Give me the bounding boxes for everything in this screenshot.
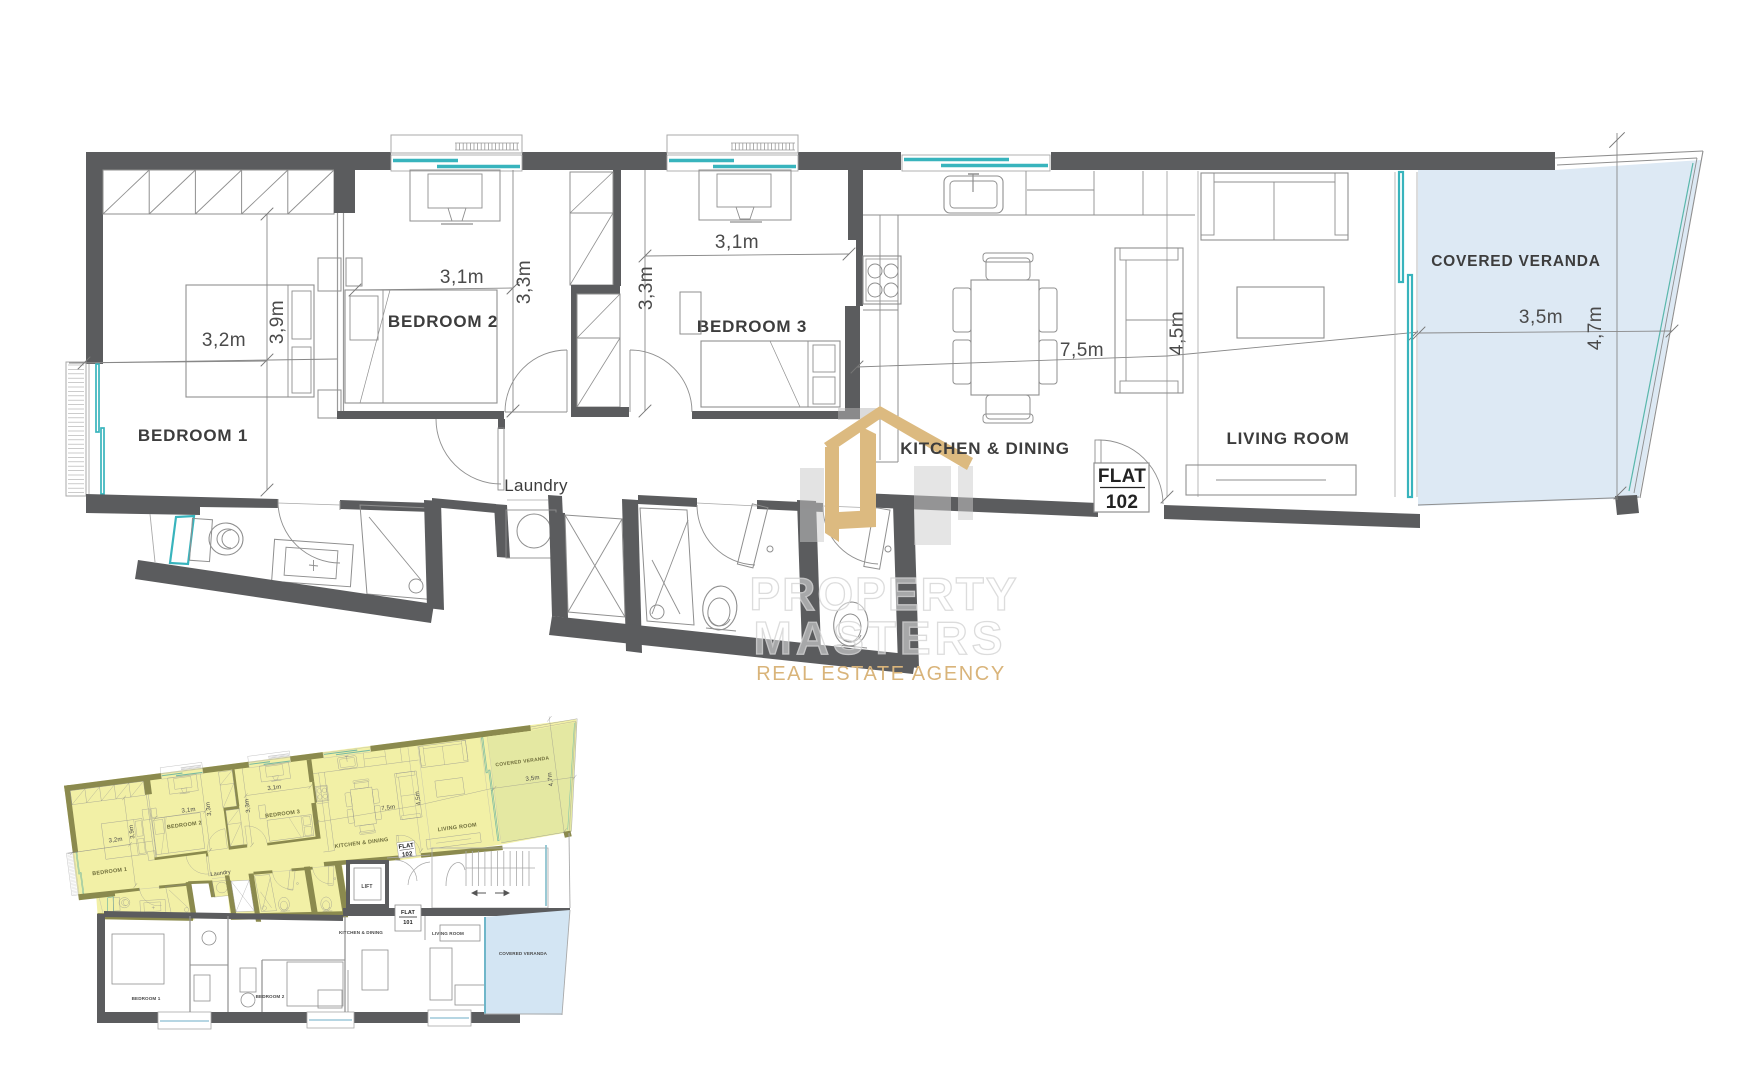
svg-text:BEDROOM 1: BEDROOM 1	[132, 996, 161, 1001]
svg-text:KITCHEN & DINING: KITCHEN & DINING	[900, 439, 1070, 458]
svg-text:BEDROOM 2: BEDROOM 2	[256, 994, 285, 999]
svg-text:REAL ESTATE AGENCY: REAL ESTATE AGENCY	[756, 663, 1006, 685]
svg-text:KITCHEN & DINING: KITCHEN & DINING	[339, 930, 383, 935]
svg-text:LIFT: LIFT	[361, 884, 372, 890]
svg-text:COVERED VERANDA: COVERED VERANDA	[1431, 253, 1601, 270]
svg-text:BEDROOM 2: BEDROOM 2	[388, 312, 498, 331]
svg-text:3,1m: 3,1m	[440, 267, 484, 288]
svg-text:3,2m: 3,2m	[202, 330, 246, 351]
svg-text:BEDROOM 1: BEDROOM 1	[138, 426, 248, 445]
svg-text:LIVING ROOM: LIVING ROOM	[432, 931, 464, 936]
svg-text:3,3m: 3,3m	[636, 266, 657, 310]
svg-text:3,9m: 3,9m	[267, 300, 288, 344]
svg-text:FLAT: FLAT	[1098, 466, 1146, 487]
svg-text:Laundry: Laundry	[504, 476, 568, 495]
svg-text:BEDROOM 3: BEDROOM 3	[697, 317, 807, 336]
svg-text:4,5m: 4,5m	[1167, 311, 1188, 355]
svg-text:3,1m: 3,1m	[715, 232, 759, 253]
svg-text:7,5m: 7,5m	[1060, 340, 1104, 361]
svg-text:102: 102	[1106, 492, 1139, 513]
svg-text:FLAT: FLAT	[401, 910, 416, 916]
svg-text:MASTERS: MASTERS	[754, 612, 1007, 664]
svg-text:101: 101	[403, 920, 412, 926]
svg-text:COVERED VERANDA: COVERED VERANDA	[499, 951, 548, 956]
svg-text:3,5m: 3,5m	[1519, 307, 1563, 328]
svg-text:3,3m: 3,3m	[514, 260, 535, 304]
svg-text:4,7m: 4,7m	[1585, 306, 1606, 350]
svg-text:LIVING ROOM: LIVING ROOM	[1226, 429, 1349, 448]
